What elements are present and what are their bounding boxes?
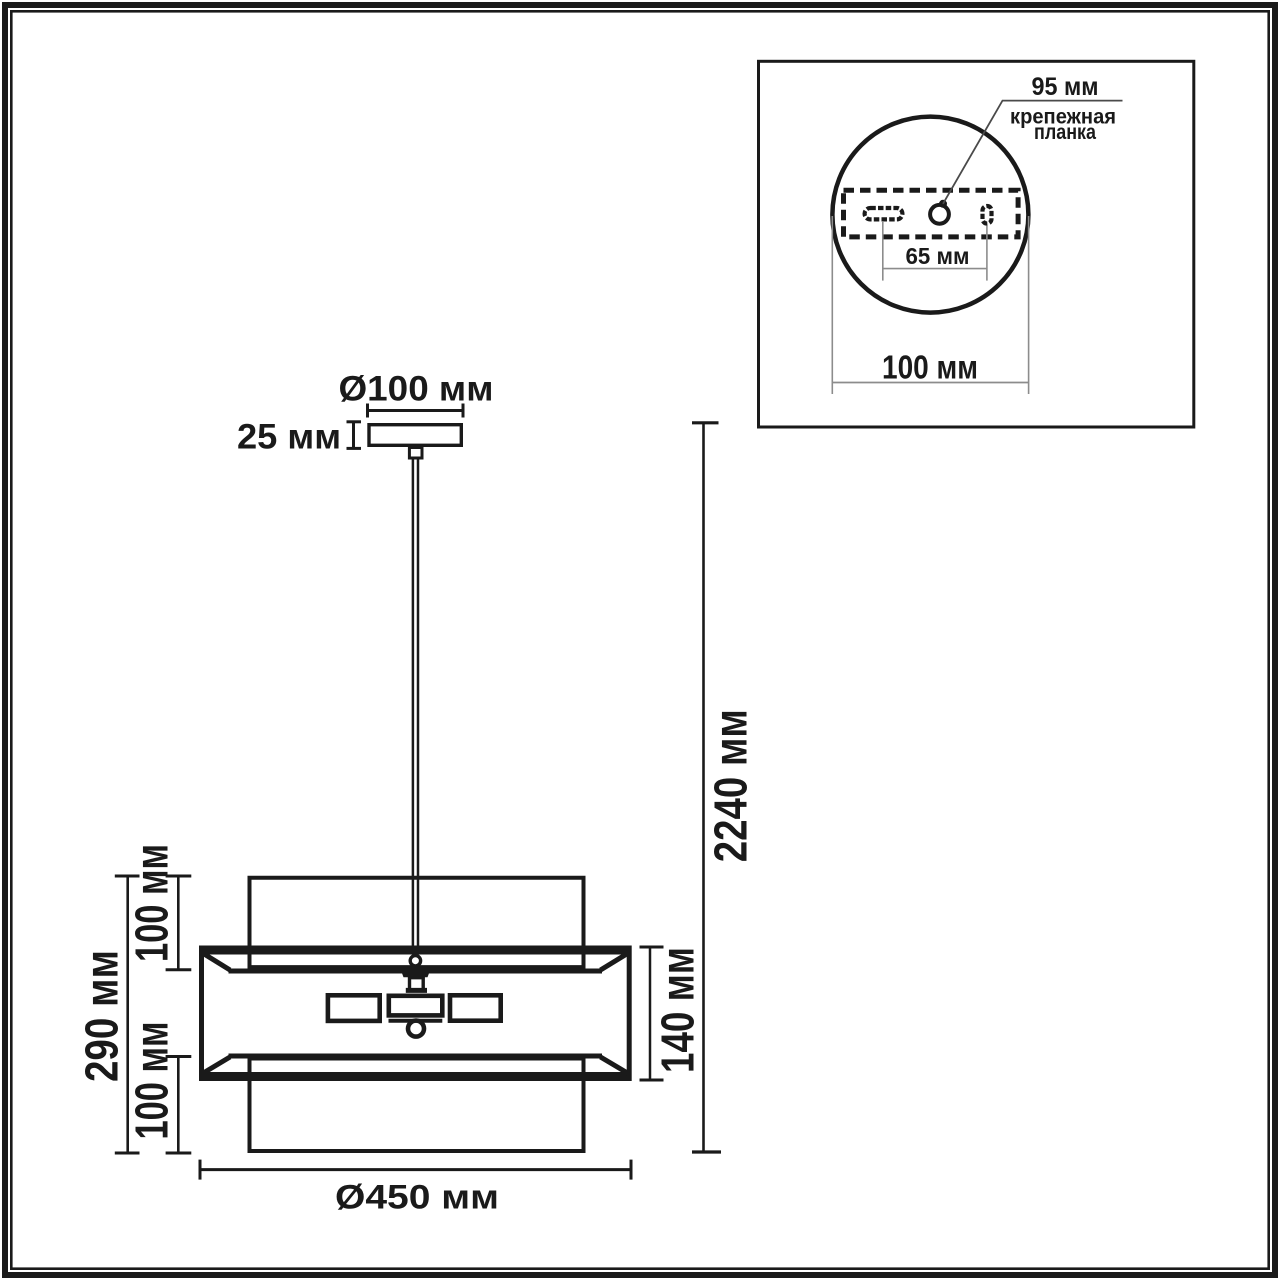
svg-text:65 мм: 65 мм [906, 243, 970, 269]
svg-text:100 мм: 100 мм [126, 1022, 178, 1140]
svg-text:290 мм: 290 мм [75, 950, 127, 1082]
svg-text:100 мм: 100 мм [882, 348, 978, 385]
svg-text:2240 мм: 2240 мм [705, 709, 757, 862]
svg-text:Ø100 мм: Ø100 мм [339, 370, 494, 409]
svg-text:95 мм: 95 мм [1032, 73, 1099, 101]
svg-text:100 мм: 100 мм [126, 844, 178, 962]
svg-text:25 мм: 25 мм [237, 418, 341, 457]
svg-text:140 мм: 140 мм [652, 947, 704, 1073]
svg-text:планка: планка [1034, 121, 1096, 144]
svg-text:Ø450 мм: Ø450 мм [335, 1178, 499, 1216]
